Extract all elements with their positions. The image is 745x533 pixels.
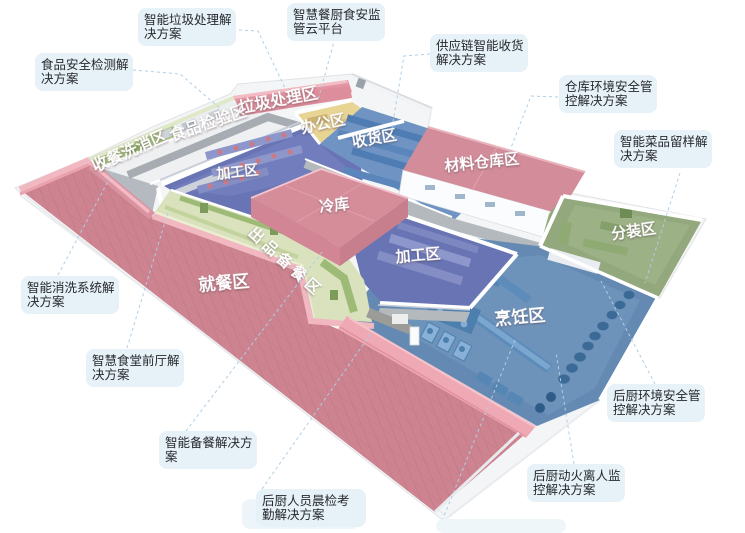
svg-text:冷库: 冷库: [318, 194, 350, 216]
